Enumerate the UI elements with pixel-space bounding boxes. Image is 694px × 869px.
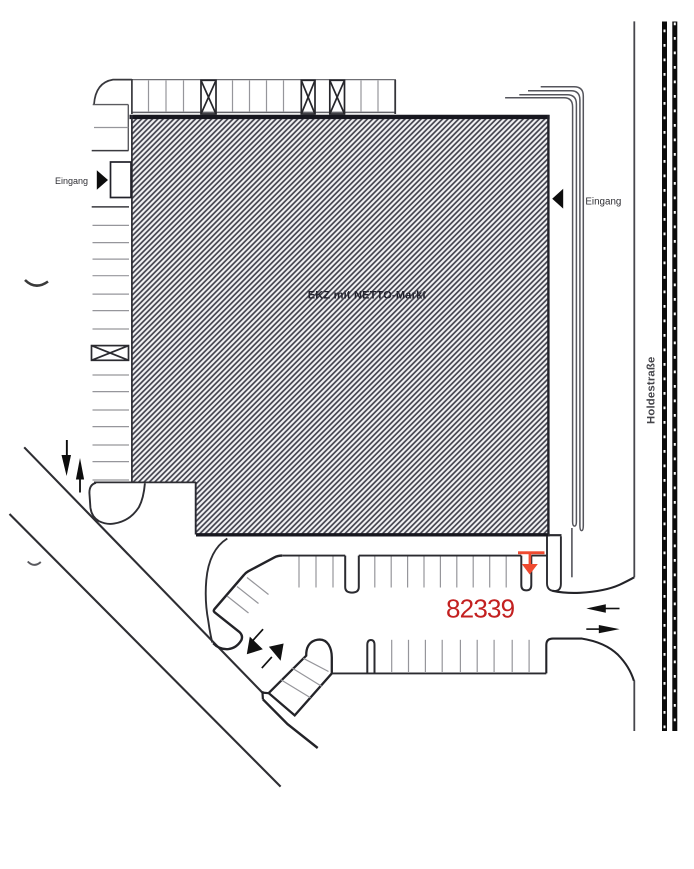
svg-text:EKZ mit NETTO-Markt: EKZ mit NETTO-Markt (308, 290, 427, 302)
svg-text:82339: 82339 (446, 594, 515, 624)
svg-text:Holdestraße: Holdestraße (646, 357, 658, 425)
svg-text:Eingang: Eingang (585, 196, 621, 207)
svg-text:Eingang: Eingang (55, 176, 88, 186)
